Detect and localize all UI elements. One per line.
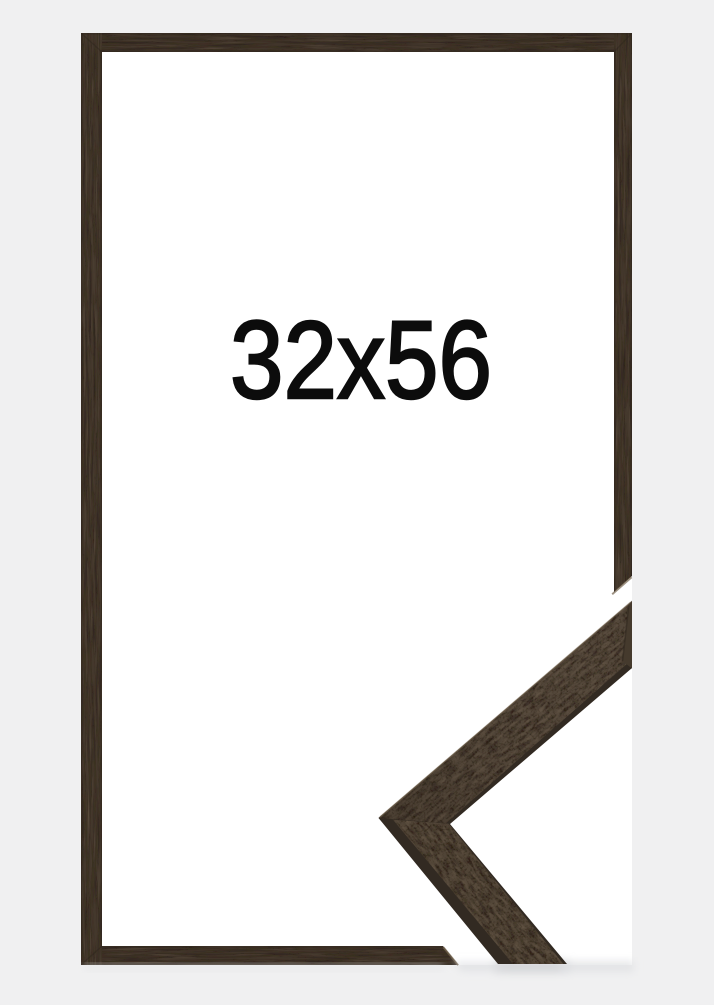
svg-text:32x56: 32x56 <box>230 299 492 422</box>
